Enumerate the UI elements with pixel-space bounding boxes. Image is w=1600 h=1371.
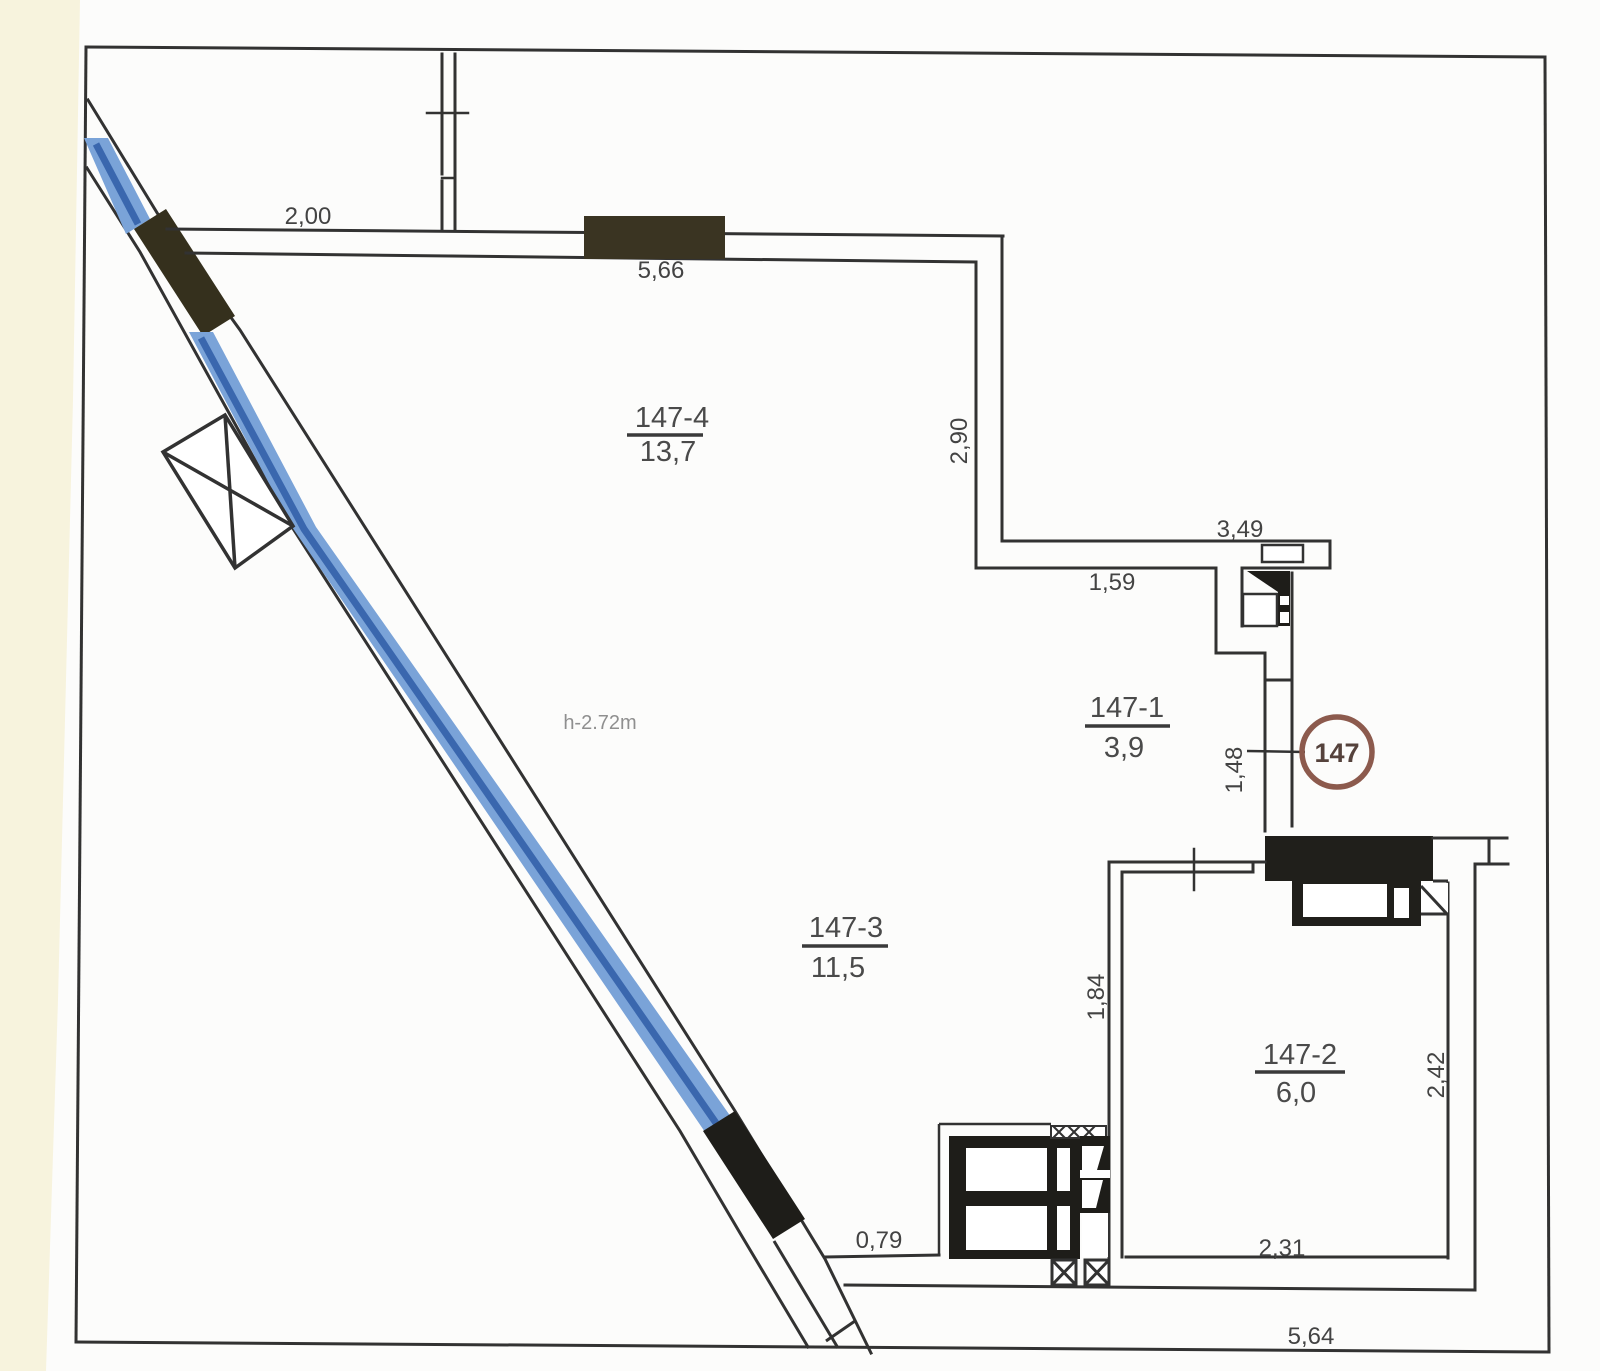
svg-text:2,00: 2,00: [285, 203, 332, 230]
svg-text:13,7: 13,7: [640, 436, 696, 468]
svg-text:1,48: 1,48: [1221, 747, 1248, 794]
svg-text:147-3: 147-3: [809, 912, 883, 944]
svg-text:3,9: 3,9: [1104, 732, 1144, 764]
svg-text:6,0: 6,0: [1276, 1077, 1316, 1109]
svg-text:5,64: 5,64: [1288, 1323, 1335, 1350]
svg-text:147-1: 147-1: [1090, 692, 1164, 724]
svg-text:147-2: 147-2: [1263, 1039, 1337, 1071]
svg-text:1,59: 1,59: [1089, 569, 1136, 596]
svg-text:3,49: 3,49: [1217, 516, 1264, 543]
svg-text:147-4: 147-4: [635, 402, 709, 434]
svg-text:11,5: 11,5: [811, 952, 865, 984]
svg-text:2,90: 2,90: [946, 418, 973, 465]
svg-text:2,31: 2,31: [1259, 1235, 1306, 1262]
svg-text:0,79: 0,79: [856, 1227, 903, 1254]
svg-text:147: 147: [1314, 738, 1359, 768]
svg-text:1,84: 1,84: [1083, 974, 1110, 1021]
svg-text:2,42: 2,42: [1423, 1052, 1450, 1099]
svg-text:h-2.72m: h-2.72m: [563, 712, 636, 734]
svg-text:5,66: 5,66: [638, 257, 685, 284]
